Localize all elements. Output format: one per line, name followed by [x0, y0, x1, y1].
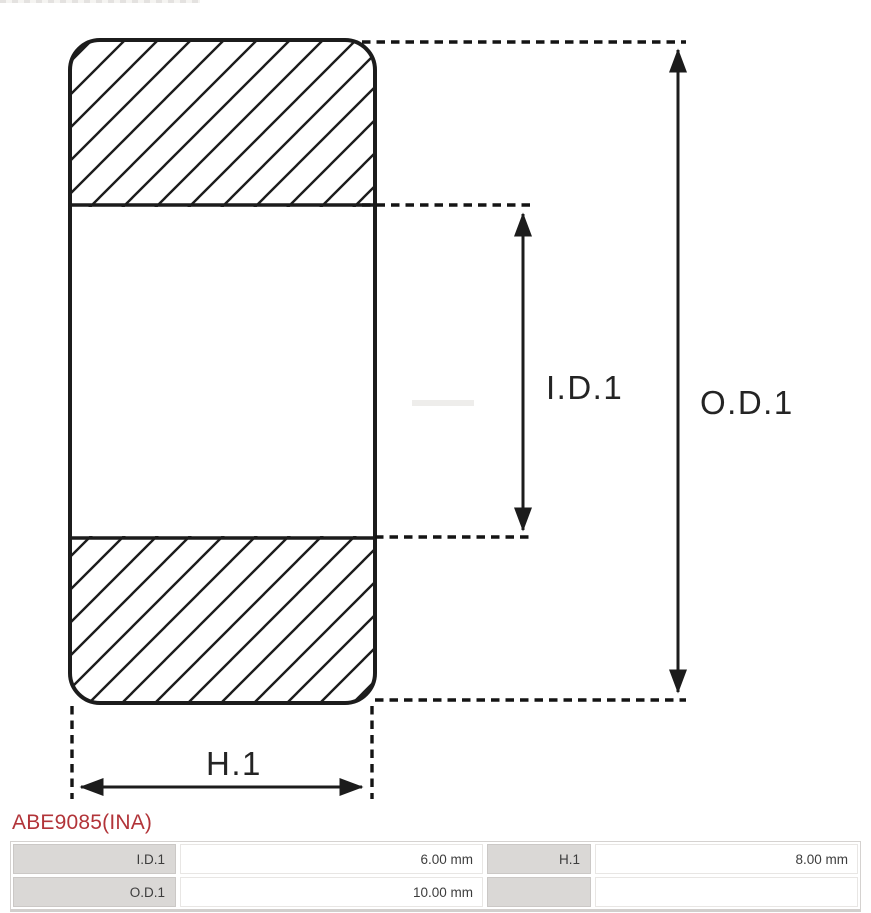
spec-label-cell: H.1 — [487, 844, 591, 874]
hatch-bottom-band — [68, 536, 377, 705]
od1-label: O.D.1 — [700, 384, 794, 421]
spec-table: I.D.1 6.00 mm H.1 8.00 mm O.D.1 10.00 mm — [10, 841, 861, 912]
watermark-artifact — [412, 400, 474, 406]
bearing-diagram-svg: I.D.1 O.D.1 H.1 — [0, 0, 871, 810]
spec-value-cell: 6.00 mm — [180, 844, 483, 874]
spec-label-cell: O.D.1 — [13, 877, 176, 907]
bearing-technical-diagram: I.D.1 O.D.1 H.1 — [0, 0, 871, 810]
h1-label: H.1 — [206, 745, 262, 782]
spec-value-cell: 10.00 mm — [180, 877, 483, 907]
spec-label-cell-empty — [487, 877, 591, 907]
spec-label-cell: I.D.1 — [13, 844, 176, 874]
hatch-top-band — [68, 38, 377, 207]
spec-value-cell: 8.00 mm — [595, 844, 858, 874]
spec-value-cell-empty — [595, 877, 858, 907]
id1-label: I.D.1 — [546, 369, 623, 406]
bearing-cross-section — [68, 38, 377, 705]
part-number: ABE9085(INA) — [12, 811, 152, 835]
